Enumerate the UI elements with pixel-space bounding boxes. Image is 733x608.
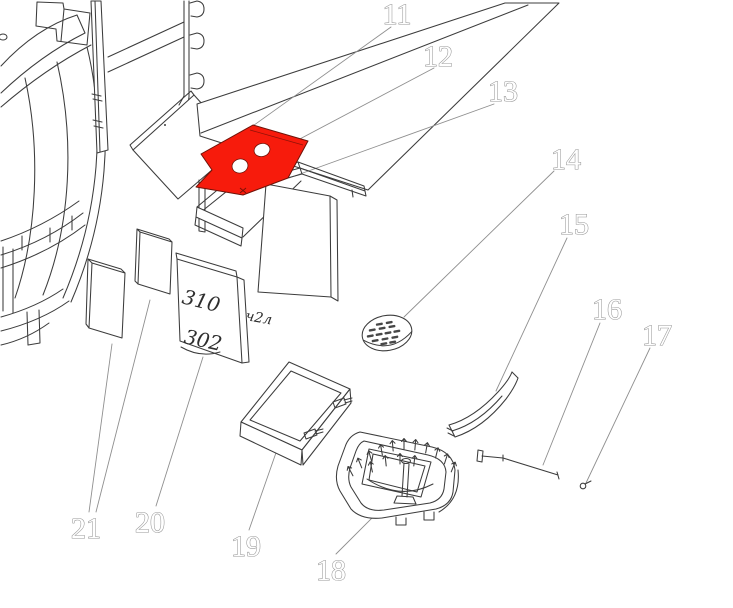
rear-post-with-tabs [179,1,204,105]
grate-basket [336,432,458,525]
panel-marking-side: ч2л [244,308,273,328]
shaker-rod [477,450,559,479]
hook-tab-icon [190,73,204,89]
callout-12: 12 [423,40,453,73]
firebrick-rear [135,229,172,294]
callout-11: 11 [383,0,412,31]
callout-21: 21 [71,512,101,545]
callout-16: 16 [592,293,622,326]
diagram-canvas: 310 302 ч2л [0,0,733,608]
firebrick-front [86,259,125,338]
callout-15: 15 [559,208,589,241]
callout-20: 20 [135,506,165,539]
callout-19: 19 [231,530,261,563]
ash-drawer [240,362,352,465]
segment-strip [91,1,108,153]
hook-tab-icon [190,33,204,49]
side-panel [258,184,338,301]
callout-13: 13 [488,75,518,108]
round-burner-grate [359,311,414,354]
curved-rail [447,372,518,437]
callout-14: 14 [551,143,581,176]
hook-tab-icon [190,1,204,17]
callout-18: 18 [316,554,346,587]
marked-brick-panel: 310 302 ч2л [176,253,273,363]
fixing-pin [580,481,591,489]
callout-17: 17 [642,319,672,352]
